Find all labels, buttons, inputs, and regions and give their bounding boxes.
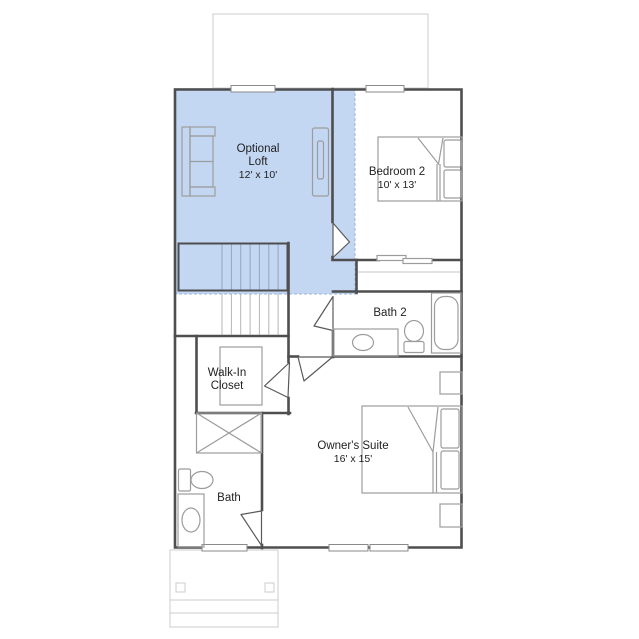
loft-highlight-region: [174, 88, 355, 294]
window-loft: [231, 86, 275, 93]
door-walk-in-closet: [265, 363, 290, 398]
floorplan-canvas: Optional Loft 12' x 10' Bedroom 2 10' x …: [0, 0, 639, 639]
pillow: [441, 409, 459, 448]
bath2-toilet-bowl: [405, 321, 424, 342]
label-bedroom2: Bedroom 2: [369, 166, 425, 178]
porch-step-2: [170, 613, 278, 627]
window-owners-1: [329, 545, 368, 552]
door-bath: [241, 511, 262, 546]
bathtub-basin: [435, 297, 459, 350]
sliding-door-2: [403, 259, 432, 264]
bath-toilet-bowl: [191, 472, 213, 489]
porch-post-left: [176, 583, 185, 592]
label-loft-dims: 12' x 10': [239, 169, 277, 181]
porch-outline-bottom: [170, 550, 278, 627]
label-loft-1: Optional: [237, 143, 280, 155]
pillow: [444, 140, 461, 167]
porch-step-1: [170, 600, 278, 613]
bath-toilet-tank: [179, 469, 191, 491]
label-loft-2: Loft: [248, 156, 268, 168]
bath2-fixtures: [333, 293, 461, 356]
label-bedroom2-dims: 10' x 13': [378, 179, 416, 191]
bedroom2-closet: [358, 256, 460, 273]
stair-treads-lower: [222, 294, 278, 335]
window-bath: [202, 545, 247, 552]
label-owners-suite-dims: 16' x 15': [334, 453, 372, 465]
bath2-sink: [353, 335, 374, 351]
bath-sink: [182, 508, 200, 532]
label-walk-in-2: Closet: [211, 380, 244, 392]
porch-post-right: [265, 583, 274, 592]
label-bath: Bath: [217, 492, 241, 504]
roof-outline-top: [213, 14, 428, 88]
window-owners-2: [370, 545, 408, 552]
bath2-toilet-tank: [404, 342, 424, 353]
bath2-vanity: [333, 329, 398, 356]
nightstand-bottom: [440, 504, 462, 527]
pillow: [444, 170, 461, 198]
label-owners-suite: Owner's Suite: [317, 440, 388, 452]
door-bath2: [314, 297, 333, 331]
nightstand-top: [440, 372, 462, 394]
sliding-door-1: [377, 256, 406, 261]
pillow: [441, 451, 459, 489]
label-bath2: Bath 2: [373, 307, 406, 319]
shower: [197, 413, 262, 453]
door-owners-suite: [298, 357, 333, 381]
floorplan-svg: Optional Loft 12' x 10' Bedroom 2 10' x …: [0, 0, 639, 639]
label-walk-in-1: Walk-In: [208, 367, 247, 379]
window-bedroom2: [366, 86, 404, 93]
